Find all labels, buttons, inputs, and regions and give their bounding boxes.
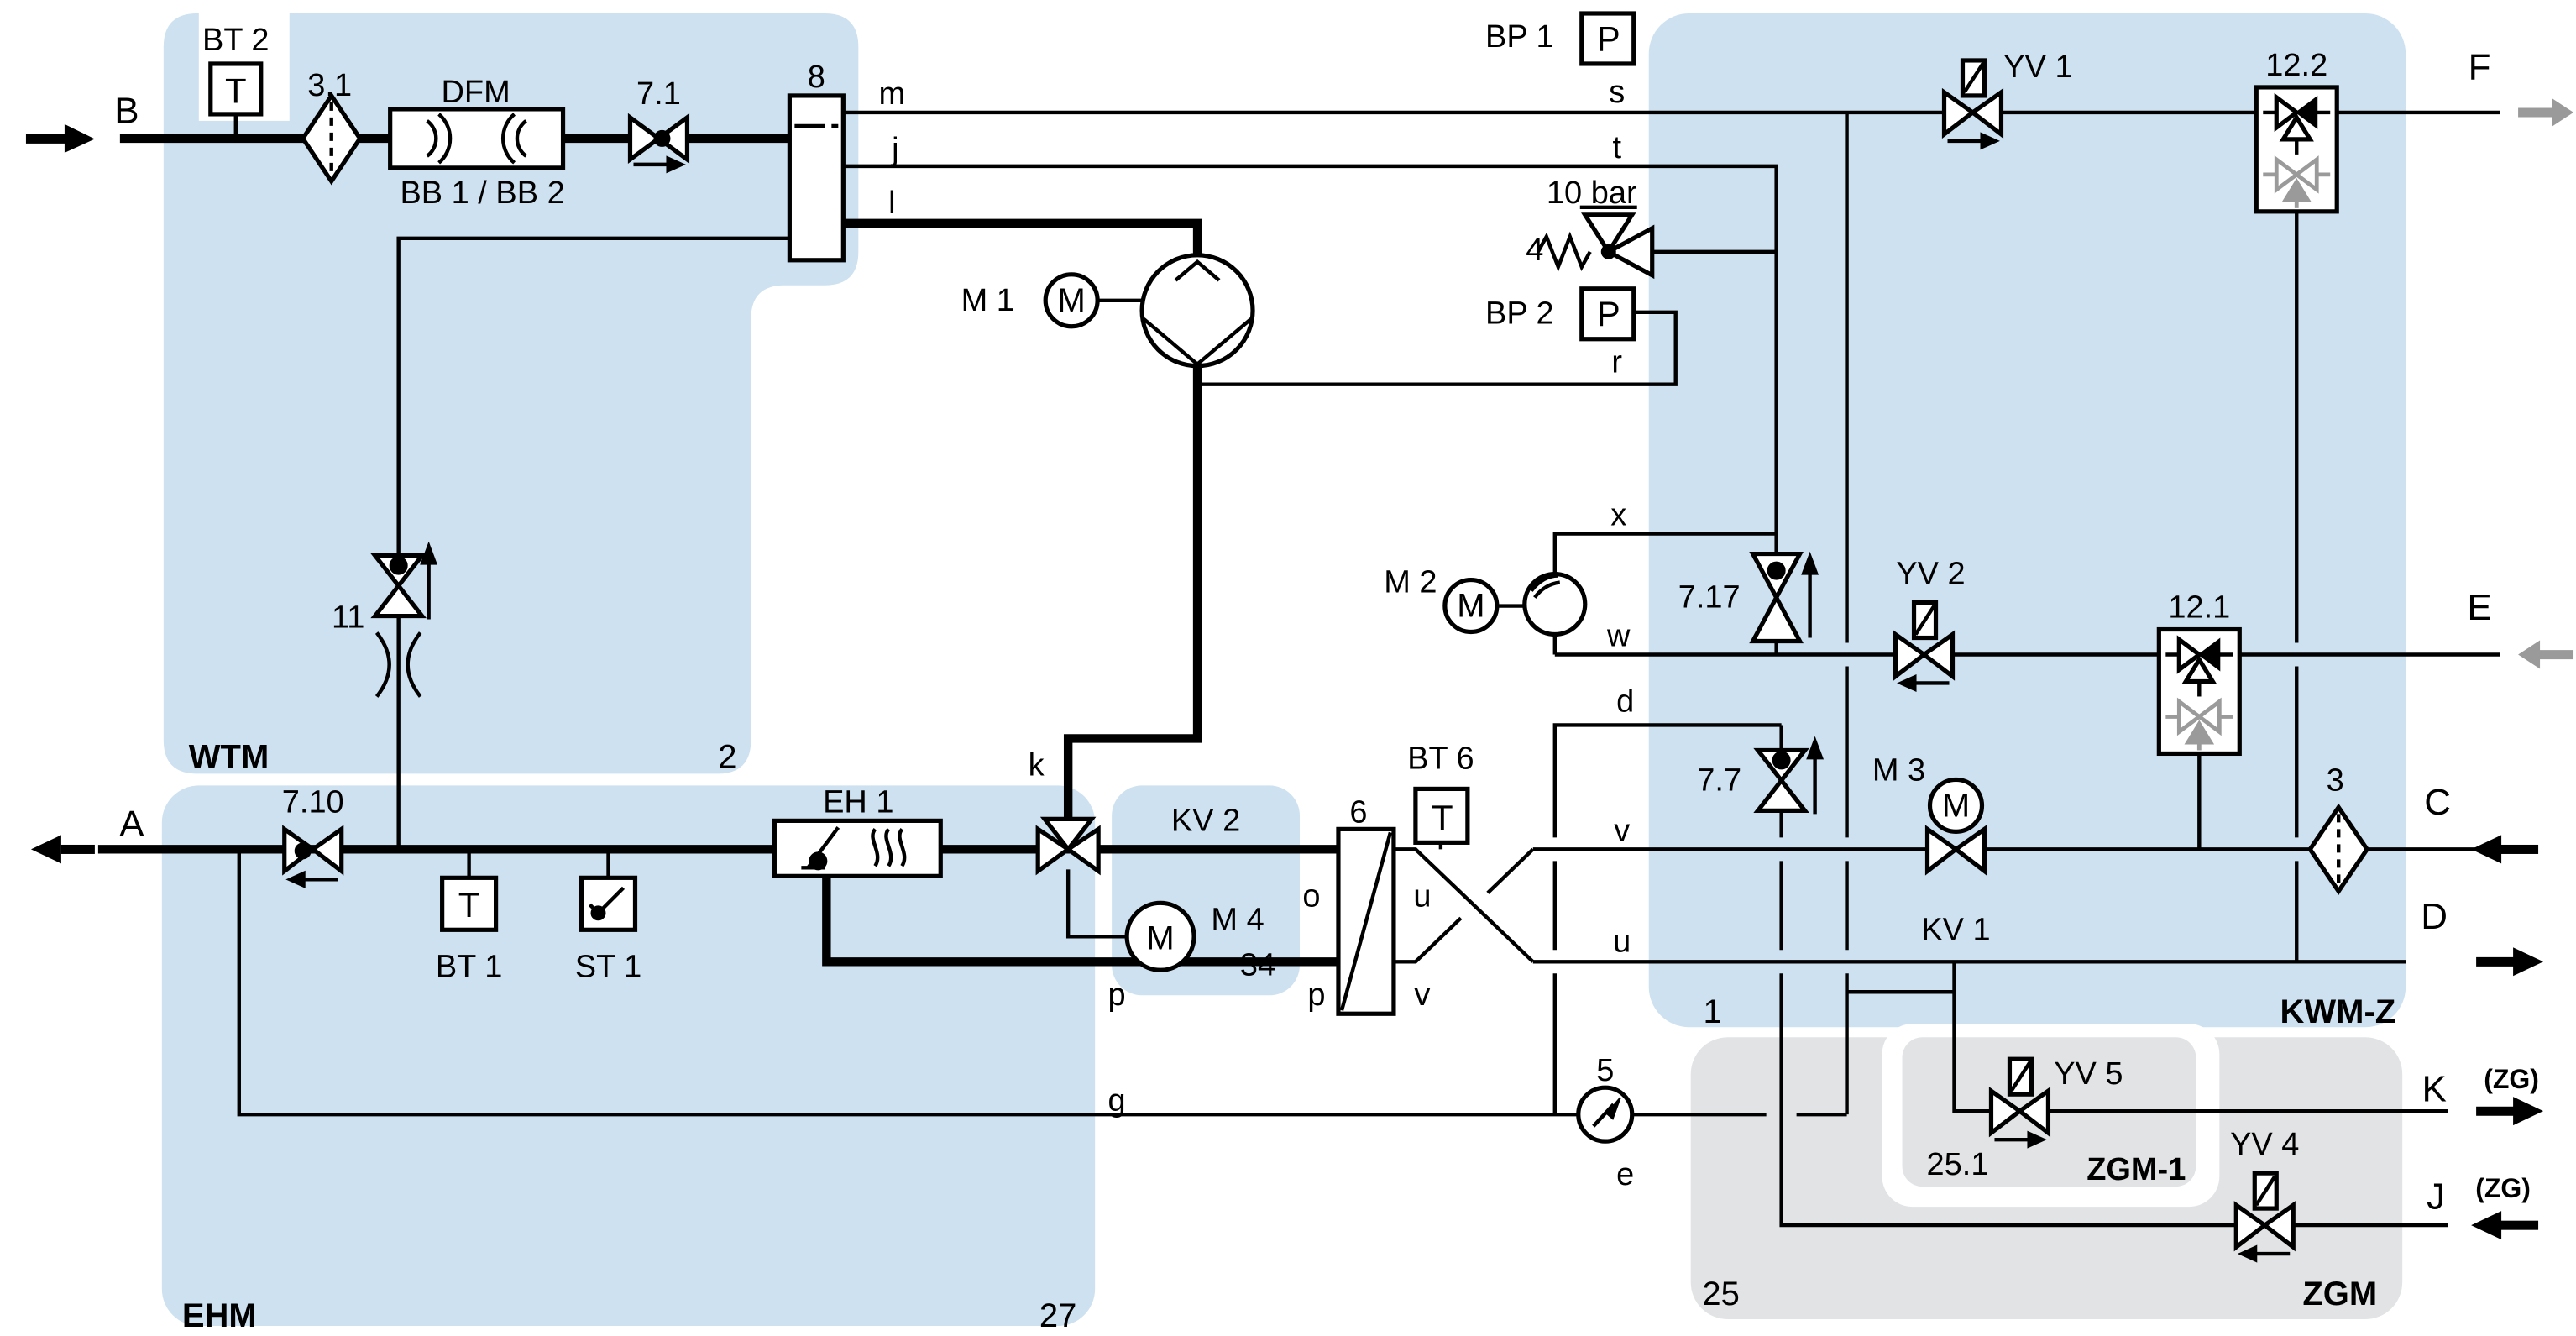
label-zg-k: (ZG) <box>2484 1064 2539 1094</box>
label-mod-ehm: EHM <box>182 1297 257 1334</box>
label-sym-bt2-t: T <box>225 71 247 110</box>
exchanger-6-icon <box>1338 829 1394 1014</box>
label-dev-yv5: YV 5 <box>2054 1056 2123 1092</box>
relief-valve-4-icon <box>1538 207 1652 275</box>
label-num-zgm1: 25.1 <box>1927 1147 1989 1182</box>
label-dev-yv2: YV 2 <box>1896 557 1965 592</box>
label-num-ehm: 27 <box>1039 1297 1076 1334</box>
label-num-wtm: 2 <box>718 738 736 775</box>
label-dev-bt2: BT 2 <box>202 23 269 58</box>
label-dev-yv1: YV 1 <box>2003 50 2072 85</box>
label-dev-bb: BB 1 / BB 2 <box>400 176 564 211</box>
schematic-canvas: BACDEFJK(ZG)(ZG)WTM2EHM27KWM-Z1ZGM25ZGM-… <box>0 0 2576 1336</box>
label-ln-m: m <box>878 76 905 112</box>
port-arrow-f-out <box>2518 98 2573 127</box>
pump-m1-icon <box>1142 255 1253 366</box>
port-arrow-c-in <box>2471 835 2538 863</box>
label-port-e: E <box>2467 587 2491 628</box>
label-ln-s: s <box>1609 75 1625 110</box>
label-dev-31: 3.1 <box>307 68 352 103</box>
assembly-12-1-icon <box>2159 630 2239 754</box>
label-dev-4: 4 <box>1526 233 1543 268</box>
label-sym-bp1-p: P <box>1597 18 1620 58</box>
label-dev-77: 7.7 <box>1697 762 1741 798</box>
gauge-5-icon <box>1579 1087 1632 1141</box>
label-dev-122: 12.2 <box>2265 48 2327 83</box>
label-port-b: B <box>114 90 139 131</box>
label-port-d: D <box>2421 896 2448 937</box>
label-sym-m3: M <box>1942 787 1970 824</box>
label-dev-m2: M 2 <box>1384 565 1437 600</box>
label-dev-10bar: 10 bar <box>1547 176 1637 211</box>
label-ln-r: r <box>1611 345 1622 380</box>
label-port-c: C <box>2424 782 2451 823</box>
dfm-flowmeter-icon <box>390 109 563 168</box>
label-dev-m1: M 1 <box>961 283 1014 318</box>
port-arrow-d-out <box>2476 947 2543 976</box>
label-num-kwmz: 1 <box>1704 993 1722 1030</box>
label-ln-k: k <box>1029 747 1045 783</box>
port-arrow-j-in <box>2471 1211 2538 1239</box>
label-dev-kv1: KV 1 <box>1921 912 1990 947</box>
label-mod-kwmz: KWM-Z <box>2280 993 2396 1030</box>
label-sym-m4: M <box>1146 919 1174 956</box>
label-ln-x: x <box>1610 498 1626 533</box>
label-ln-p1: p <box>1108 977 1126 1013</box>
label-dev-34: 34 <box>1240 947 1275 982</box>
label-ln-j: j <box>891 132 898 167</box>
label-num-zgm: 25 <box>1702 1276 1739 1312</box>
label-sym-m1: M <box>1058 282 1086 319</box>
label-ln-d: d <box>1616 684 1634 719</box>
label-ln-o: o <box>1302 878 1320 914</box>
label-dev-m3: M 3 <box>1872 752 1925 788</box>
label-dev-3: 3 <box>2327 762 2344 798</box>
port-arrow-a-out <box>31 835 95 863</box>
heater-eh1-icon <box>774 820 940 876</box>
label-port-k: K <box>2422 1069 2446 1110</box>
label-port-f: F <box>2469 46 2491 87</box>
port-arrow-b-in <box>26 124 95 153</box>
label-port-j: J <box>2427 1176 2445 1218</box>
label-dev-717: 7.17 <box>1678 580 1741 616</box>
pipe-pump-down <box>1068 366 1197 826</box>
label-sym-bp2-p: P <box>1597 294 1620 333</box>
label-sym-bt6-t: T <box>1432 798 1453 837</box>
label-dev-8: 8 <box>808 60 825 95</box>
label-dev-bp1: BP 1 <box>1485 19 1554 55</box>
label-mod-zgm1: ZGM-1 <box>2086 1152 2186 1187</box>
pump-m2-icon <box>1525 574 1585 635</box>
label-ln-e: e <box>1616 1157 1634 1192</box>
region-ehm <box>162 785 1095 1326</box>
label-dev-bp2: BP 2 <box>1485 296 1554 332</box>
port-arrow-e-in <box>2518 641 2573 669</box>
label-mod-wtm: WTM <box>189 738 269 775</box>
label-mod-zgm: ZGM <box>2302 1276 2377 1312</box>
label-ln-w: w <box>1606 619 1631 654</box>
assembly-12-2-icon <box>2256 87 2337 212</box>
label-dev-11: 11 <box>332 600 364 636</box>
label-dev-dfm: DFM <box>441 75 510 110</box>
label-port-a: A <box>119 804 144 845</box>
label-ln-l: l <box>888 186 895 221</box>
label-ln-p2: p <box>1307 977 1325 1013</box>
pipe-l-line <box>843 223 1197 255</box>
label-zg-j: (ZG) <box>2475 1173 2531 1203</box>
label-ln-v: v <box>1614 813 1630 848</box>
label-dev-6: 6 <box>1349 794 1367 830</box>
label-dev-710: 7.10 <box>282 784 344 820</box>
label-dev-121: 12.1 <box>2168 590 2230 626</box>
label-dev-st1: ST 1 <box>575 949 642 984</box>
label-dev-bt1: BT 1 <box>436 949 503 984</box>
label-dev-m4: M 4 <box>1211 902 1264 937</box>
label-dev-5: 5 <box>1596 1053 1614 1088</box>
label-ln-v6: v <box>1414 977 1430 1013</box>
label-dev-eh1: EH 1 <box>823 784 893 820</box>
label-dev-kv2: KV 2 <box>1171 803 1240 838</box>
label-ln-t: t <box>1612 130 1621 165</box>
label-dev-71: 7.1 <box>636 76 681 112</box>
label-sym-bt1-t: T <box>458 885 480 925</box>
label-dev-bt6: BT 6 <box>1407 741 1474 776</box>
port-arrow-k-out <box>2476 1097 2543 1125</box>
label-ln-u: u <box>1613 924 1631 959</box>
label-dev-yv4: YV 4 <box>2230 1127 2299 1162</box>
separator-8-icon <box>789 96 843 260</box>
label-sym-m2: M <box>1457 588 1484 625</box>
label-ln-u6: u <box>1413 878 1431 914</box>
label-ln-g: g <box>1108 1083 1126 1119</box>
